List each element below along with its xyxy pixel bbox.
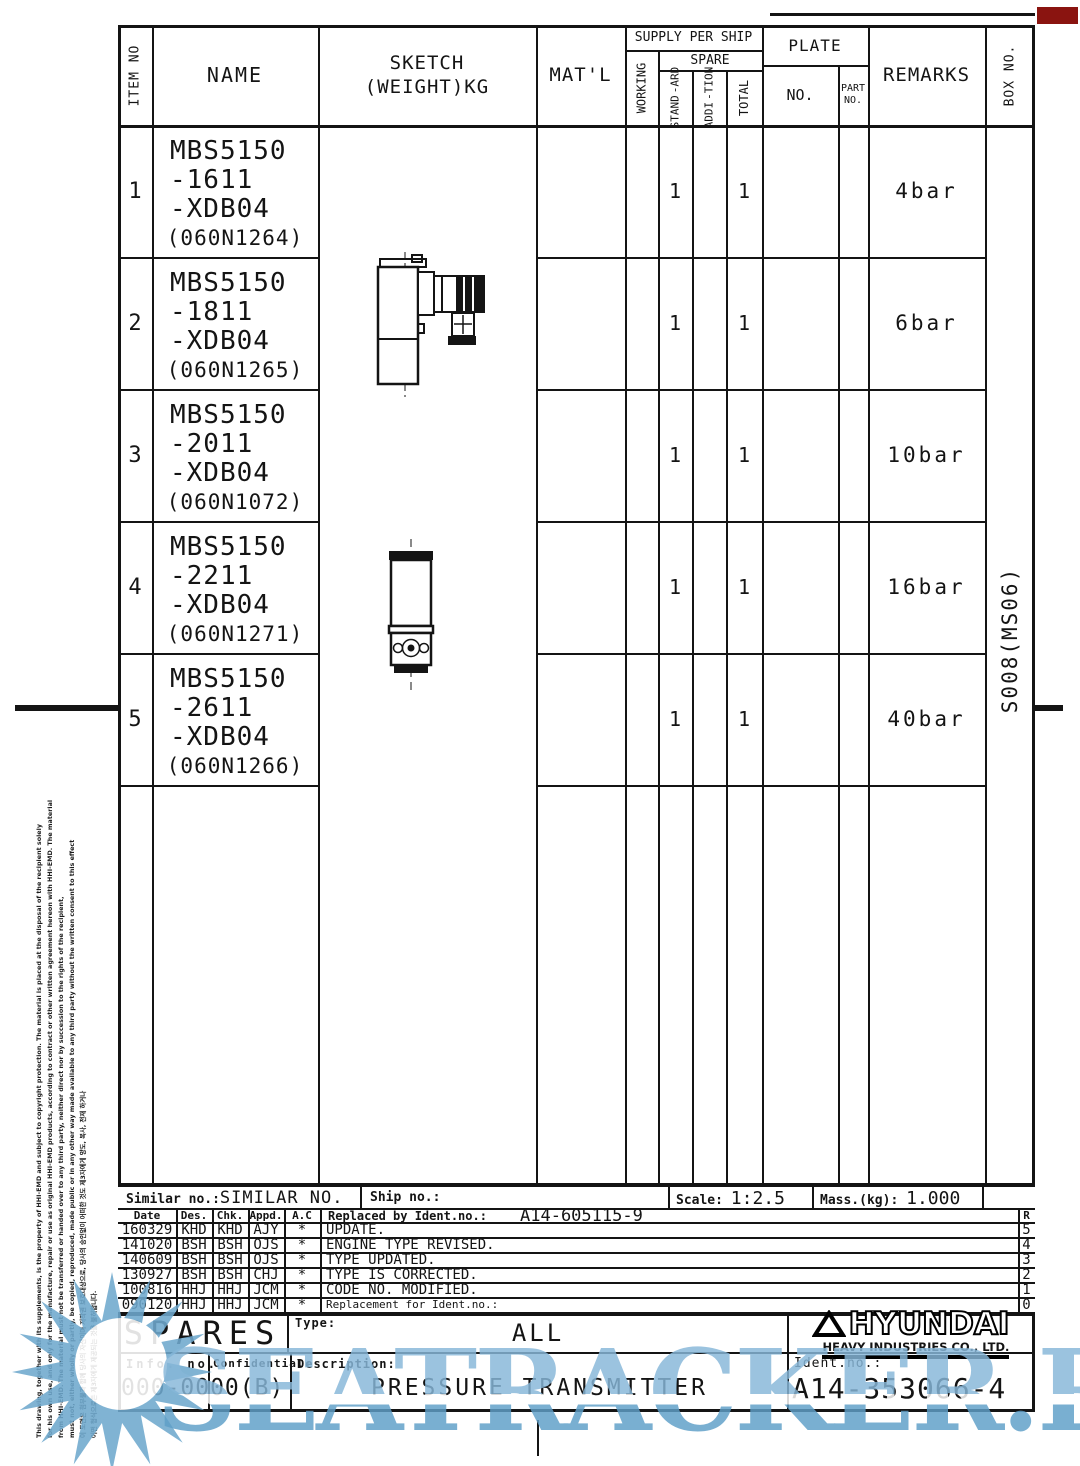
- rev-desc: TYPE UPDATED.: [326, 1252, 726, 1267]
- part-name: MBS5150 -2011 -XDB04: [170, 401, 287, 488]
- rev-desc: UPDATE.: [326, 1222, 726, 1237]
- header-sketch-line2: (WEIGHT)KG: [365, 75, 489, 99]
- header-matl: MAT'L: [536, 25, 625, 125]
- grid-line: [838, 65, 840, 1183]
- part-name-line2: -2211: [170, 562, 287, 591]
- grid-line: [668, 1187, 670, 1208]
- part-code: (060N1264): [152, 226, 318, 250]
- rev-desc: TYPE IS CORRECTED.: [326, 1267, 726, 1282]
- header-standard-line2: -ARD: [669, 67, 682, 94]
- rev-ac: *: [284, 1267, 320, 1282]
- part-name-line3: -XDB04: [170, 195, 287, 224]
- part-name-line3: -XDB04: [170, 723, 287, 752]
- rev-num: 0: [1018, 1297, 1035, 1312]
- rev-chk: BSH: [212, 1252, 248, 1267]
- box-no-text: S008(MS06): [998, 567, 1022, 713]
- total-qty: 1: [726, 125, 762, 257]
- grid-line: [118, 1183, 1035, 1187]
- similar-no: Similar no.:SIMILAR NO.: [126, 1188, 344, 1208]
- header-part-no-line1: PART: [841, 83, 865, 95]
- item-number: 1: [118, 125, 152, 257]
- rev-appd: AJY: [248, 1222, 284, 1237]
- item-number: 4: [118, 521, 152, 653]
- grid-line: [152, 28, 154, 1183]
- header-working: WORKING: [625, 50, 658, 125]
- header-total-label: TOTAL: [737, 79, 751, 115]
- grid-line: [762, 28, 764, 1183]
- rev-num: 2: [1018, 1267, 1035, 1282]
- grid-line: [982, 1187, 984, 1208]
- rev-date: 141020: [118, 1237, 176, 1252]
- remarks-value: 40bar: [868, 653, 985, 785]
- rev-header-des: Des.: [176, 1208, 212, 1222]
- similar-no-label: Similar no.:: [126, 1192, 220, 1207]
- scale-label: Scale:: [676, 1193, 723, 1208]
- part-code: (060N1266): [152, 754, 318, 778]
- total-qty: 1: [726, 389, 762, 521]
- grid-line: [318, 28, 320, 1183]
- header-plate: PLATE: [762, 25, 868, 65]
- rev-header-ac: A.C: [284, 1208, 320, 1222]
- rev-desc: Replacement for Ident.no.:: [326, 1297, 726, 1312]
- header-item-no: ITEM NO: [118, 25, 152, 125]
- left-fold-tick: [15, 705, 118, 711]
- total-qty: 1: [726, 521, 762, 653]
- rev-chk: KHD: [212, 1222, 248, 1237]
- rev-num: 1: [1018, 1282, 1035, 1297]
- rev-header-chk: Chk.: [212, 1208, 248, 1222]
- header-part-no: PART NO.: [838, 65, 868, 125]
- rev-desc: CODE NO. MODIFIED.: [326, 1282, 726, 1297]
- remarks-value: 16bar: [868, 521, 985, 653]
- part-code: (060N1265): [152, 358, 318, 382]
- drawing-sheet: ITEM NO NAME SKETCH (WEIGHT)KG MAT'L SUP…: [0, 0, 1080, 1466]
- standard-qty: 1: [658, 653, 692, 785]
- rev-ac: *: [284, 1252, 320, 1267]
- mass-label: Mass.(kg):: [820, 1193, 898, 1208]
- rev-header-appd: Appd.: [248, 1208, 284, 1222]
- grid-line: [692, 70, 694, 1183]
- standard-qty: 1: [658, 125, 692, 257]
- part-code: (060N1072): [152, 490, 318, 514]
- rev-chk: BSH: [212, 1237, 248, 1252]
- header-addition-label: ADDI-TION: [703, 67, 716, 129]
- header-addition-line2: -TION: [703, 67, 716, 100]
- rev-appd: OJS: [248, 1252, 284, 1267]
- part-name-line2: -1611: [170, 166, 287, 195]
- rev-num: 3: [1018, 1252, 1035, 1267]
- header-part-no-line2: NO.: [844, 95, 862, 107]
- grid-line: [536, 28, 538, 1183]
- similar-no-value: SIMILAR NO.: [220, 1188, 344, 1208]
- rev-appd: JCM: [248, 1282, 284, 1297]
- scale: Scale: 1:2.5: [676, 1188, 785, 1209]
- header-addition-line1: ADDI: [703, 102, 716, 129]
- part-name-line1: MBS5150: [170, 137, 287, 166]
- part-name: MBS5150 -1611 -XDB04: [170, 137, 287, 224]
- mass: Mass.(kg): 1.000: [820, 1188, 960, 1209]
- corner-red-mark: [1037, 7, 1078, 24]
- rev-ac: *: [284, 1282, 320, 1297]
- rev-appd: OJS: [248, 1237, 284, 1252]
- remarks-value: 4bar: [868, 125, 985, 257]
- rev-num: 4: [1018, 1237, 1035, 1252]
- part-name-line1: MBS5150: [170, 665, 287, 694]
- box-no-value: S008(MS06): [985, 530, 1035, 750]
- part-name-line1: MBS5150: [170, 533, 287, 562]
- part-name-line2: -1811: [170, 298, 287, 327]
- rev-des: BSH: [176, 1237, 212, 1252]
- part-name-line1: MBS5150: [170, 269, 287, 298]
- remarks-value: 10bar: [868, 389, 985, 521]
- rev-ac: *: [284, 1222, 320, 1237]
- transmitter-side-sketch: [368, 250, 498, 400]
- rev-header-r: R: [1018, 1208, 1035, 1222]
- rev-appd: JCM: [248, 1297, 284, 1312]
- remarks-value: 6bar: [868, 257, 985, 389]
- item-number: 3: [118, 389, 152, 521]
- grid-line: [625, 28, 627, 1183]
- header-name: NAME: [152, 25, 318, 125]
- header-remarks: REMARKS: [868, 25, 985, 125]
- total-qty: 1: [726, 653, 762, 785]
- header-sketch: SKETCH (WEIGHT)KG: [318, 25, 536, 125]
- standard-qty: 1: [658, 389, 692, 521]
- rev-des: KHD: [176, 1222, 212, 1237]
- total-qty: 1: [726, 257, 762, 389]
- header-plate-no: NO.: [762, 65, 838, 125]
- item-number: 5: [118, 653, 152, 785]
- top-right-line: [770, 13, 1035, 16]
- watermark-text: SEATRACKER.RU: [156, 1326, 1080, 1457]
- rev-desc: ENGINE TYPE REVISED.: [326, 1237, 726, 1252]
- part-name-line1: MBS5150: [170, 401, 287, 430]
- standard-qty: 1: [658, 521, 692, 653]
- part-code: (060N1271): [152, 622, 318, 646]
- grid-line: [536, 785, 985, 787]
- standard-qty: 1: [658, 257, 692, 389]
- part-name-line3: -XDB04: [170, 327, 287, 356]
- rev-header-date: Date: [118, 1208, 176, 1222]
- grid-line: [360, 1187, 362, 1208]
- part-name: MBS5150 -2211 -XDB04: [170, 533, 287, 620]
- header-total: TOTAL: [726, 70, 762, 125]
- rev-date: 160329: [118, 1222, 176, 1237]
- header-item-no-label: ITEM NO: [128, 44, 143, 106]
- header-box-no: BOX NO.: [985, 25, 1035, 125]
- header-box-no-label: BOX NO.: [1003, 44, 1018, 106]
- item-number: 2: [118, 257, 152, 389]
- rev-num: 5: [1018, 1222, 1035, 1237]
- rev-ac: *: [284, 1237, 320, 1252]
- header-supply-per-ship: SUPPLY PER SHIP: [625, 25, 762, 50]
- grid-line: [118, 785, 318, 787]
- header-sketch-line1: SKETCH: [390, 51, 465, 75]
- part-name-line2: -2611: [170, 694, 287, 723]
- mass-value: 1.000: [906, 1188, 960, 1209]
- header-standard-line1: STAND: [669, 95, 682, 128]
- grid-line: [812, 1187, 814, 1208]
- rev-date: 140609: [118, 1252, 176, 1267]
- part-name: MBS5150 -2611 -XDB04: [170, 665, 287, 752]
- part-name-line2: -2011: [170, 430, 287, 459]
- transmitter-front-sketch: [380, 535, 450, 695]
- header-standard-label: STAND-ARD: [669, 67, 682, 129]
- rev-appd: CHJ: [248, 1267, 284, 1282]
- right-fold-tick: [1035, 705, 1063, 711]
- scale-value: 1:2.5: [731, 1188, 785, 1209]
- part-name: MBS5150 -1811 -XDB04: [170, 269, 287, 356]
- part-name-line3: -XDB04: [170, 591, 287, 620]
- ship-no-label: Ship no.:: [370, 1190, 440, 1205]
- rev-ac: *: [284, 1297, 320, 1312]
- header-working-label: WORKING: [635, 62, 649, 113]
- part-name-line3: -XDB04: [170, 459, 287, 488]
- header-addition: ADDI-TION: [692, 70, 726, 125]
- header-standard: STAND-ARD: [658, 70, 692, 125]
- rev-des: BSH: [176, 1252, 212, 1267]
